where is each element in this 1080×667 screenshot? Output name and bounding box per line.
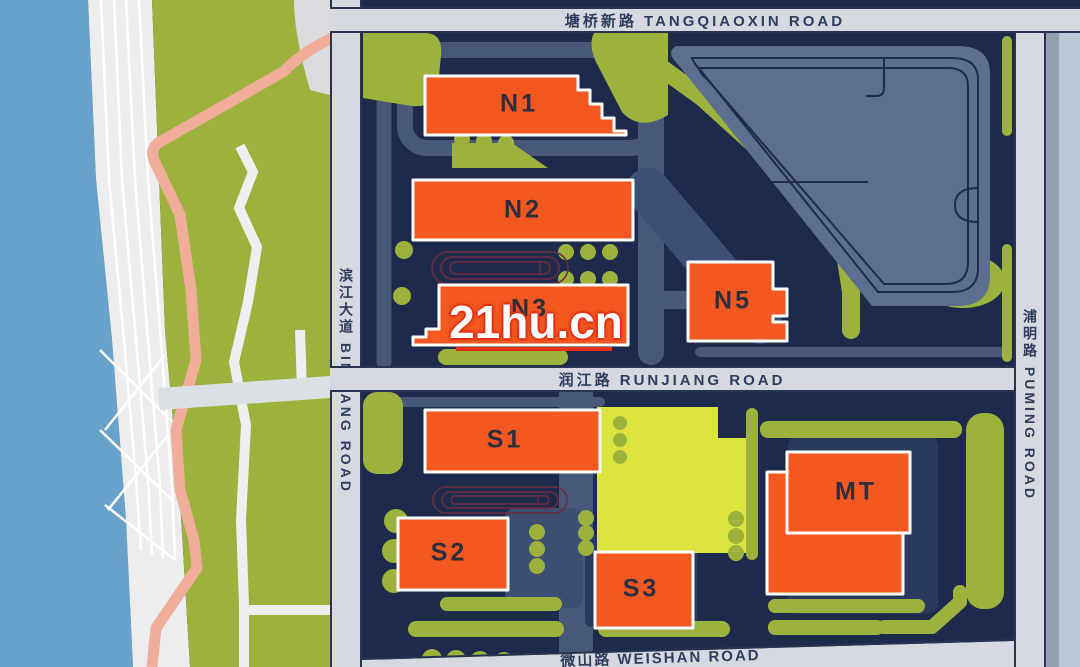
road-puming-label: 浦明路 PUMING ROAD: [1020, 309, 1040, 501]
road-tangqiaoxin-label: 塘桥新路 TANGQIAOXIN ROAD: [565, 10, 845, 31]
right-margin-strip: [1059, 9, 1080, 667]
building-s2-label: S2: [431, 539, 468, 568]
building-n2-label: N2: [504, 196, 542, 225]
watermark-underline: [456, 347, 612, 351]
building-mt-label: MT: [835, 478, 877, 507]
road-puming: 浦明路 PUMING ROAD: [1014, 9, 1046, 667]
site-plan-map: 滨江大道 BINJIANG ROAD 浦明路 PUMING ROAD 润江路 R…: [0, 0, 1080, 667]
building-n1-label: N1: [500, 90, 538, 119]
building-s1-label: S1: [487, 426, 524, 455]
watermark: 21hu.cn: [447, 295, 625, 349]
road-runjiang: 润江路 RUNJIANG ROAD: [330, 366, 1014, 392]
building-s3-label: S3: [623, 575, 660, 604]
road-binjiang: 滨江大道 BINJIANG ROAD: [330, 0, 362, 667]
south-block: [363, 392, 1004, 667]
right-curb-strip: [1046, 9, 1059, 667]
road-tangqiaoxin: 塘桥新路 TANGQIAOXIN ROAD: [330, 7, 1080, 33]
road-runjiang-label: 润江路 RUNJIANG ROAD: [559, 369, 786, 390]
building-n5-label: N5: [714, 287, 752, 316]
